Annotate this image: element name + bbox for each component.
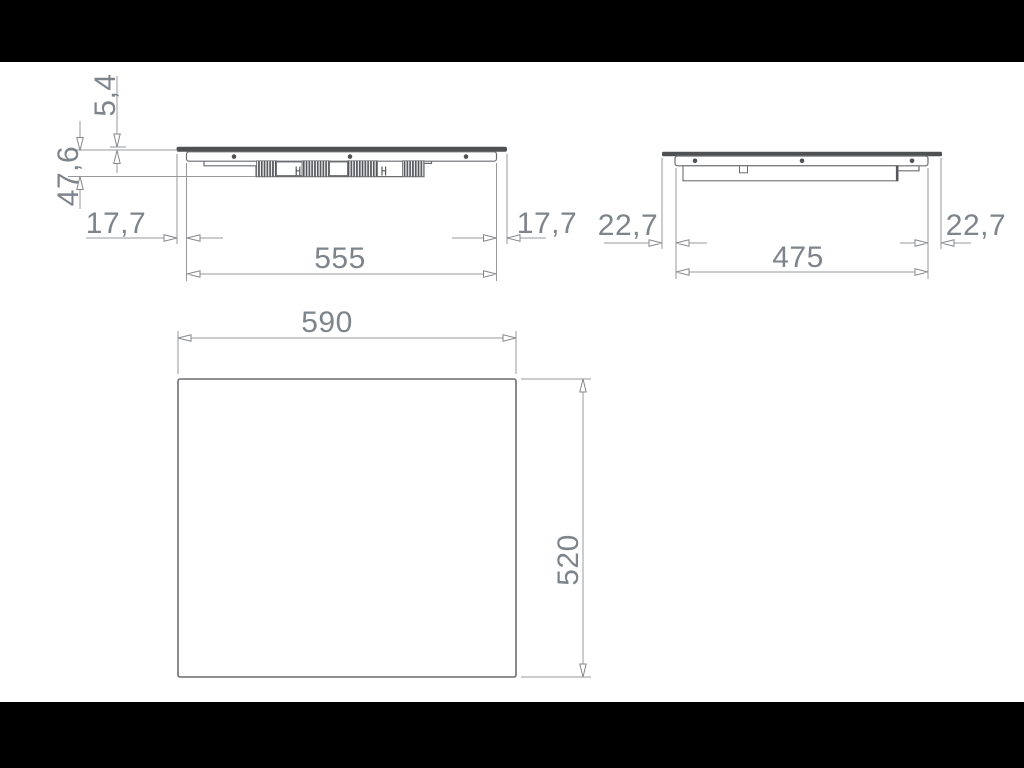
front-view: 5,4 47,6 17,7 555 17,7: [52, 73, 577, 281]
front-glass-plate: [177, 147, 508, 152]
side-step-detail: [898, 166, 919, 171]
housing-box: [277, 162, 303, 176]
side-housing-box: [683, 166, 898, 181]
screw-dot: [800, 159, 805, 164]
plan-outline-rect: [178, 379, 516, 677]
technical-drawing: 5,4 47,6 17,7 555 17,7 22,7: [0, 0, 1024, 768]
side-tab-detail: [740, 166, 748, 173]
cooling-fins-block: [348, 161, 378, 177]
plan-depth-label: 520: [552, 534, 585, 586]
screw-dot: [693, 159, 698, 164]
cooling-fins-block: [257, 161, 277, 177]
housing-box: [330, 162, 348, 176]
front-total-height-label: 47,6: [52, 146, 85, 206]
cooling-fins-block: [403, 161, 425, 177]
front-overhang-right-label: 17,7: [517, 207, 577, 240]
front-overhang-left-label: 17,7: [86, 207, 146, 240]
side-body-depth-label: 475: [772, 241, 824, 274]
screenshot-root: 5,4 47,6 17,7 555 17,7 22,7: [0, 0, 1024, 768]
front-body-width-label: 555: [314, 242, 366, 275]
plan-width-label: 590: [301, 306, 353, 339]
plan-view: 590 520: [178, 306, 591, 677]
screw-dot: [464, 154, 469, 159]
screw-dot: [348, 154, 353, 159]
front-dimension-lines: [68, 76, 546, 281]
side-overhang-left-label: 22,7: [598, 209, 658, 242]
side-view: 22,7 475 22,7: [598, 152, 1006, 279]
front-dimension-arrowheads: [77, 134, 520, 277]
screw-dot: [232, 154, 237, 159]
cooling-fins-block: [302, 161, 330, 177]
front-plate-thickness-label: 5,4: [89, 73, 122, 116]
screw-dot: [910, 159, 915, 164]
side-overhang-right-label: 22,7: [946, 209, 1006, 242]
